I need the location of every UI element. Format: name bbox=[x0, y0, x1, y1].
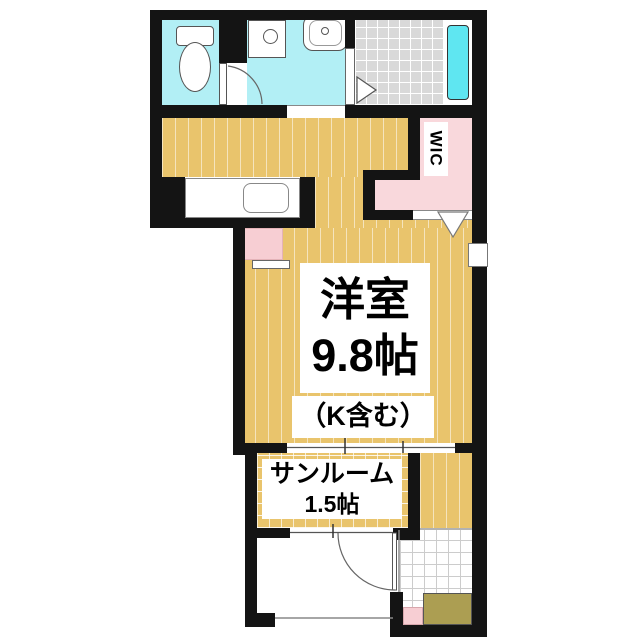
toilet-door-arc-icon bbox=[228, 66, 262, 104]
entrance-hall-door-arc-icon bbox=[338, 533, 395, 590]
wic-door-icon bbox=[438, 212, 468, 237]
main-room-label: 洋室 9.8帖 bbox=[300, 263, 430, 393]
sunroom-label: サンルーム 1.5帖 bbox=[262, 459, 402, 519]
entrance-hall-door-leaf bbox=[393, 533, 397, 590]
bathroom-folding-door-icon bbox=[357, 77, 376, 103]
floor-plan: WIC bbox=[0, 0, 640, 640]
sunroom-size: 1.5帖 bbox=[305, 490, 360, 519]
sunroom-name: サンルーム bbox=[270, 459, 394, 490]
main-room-size: 9.8帖 bbox=[311, 328, 419, 384]
main-room-name: 洋室 bbox=[320, 272, 410, 328]
main-room-note: （K含む） bbox=[292, 396, 434, 438]
